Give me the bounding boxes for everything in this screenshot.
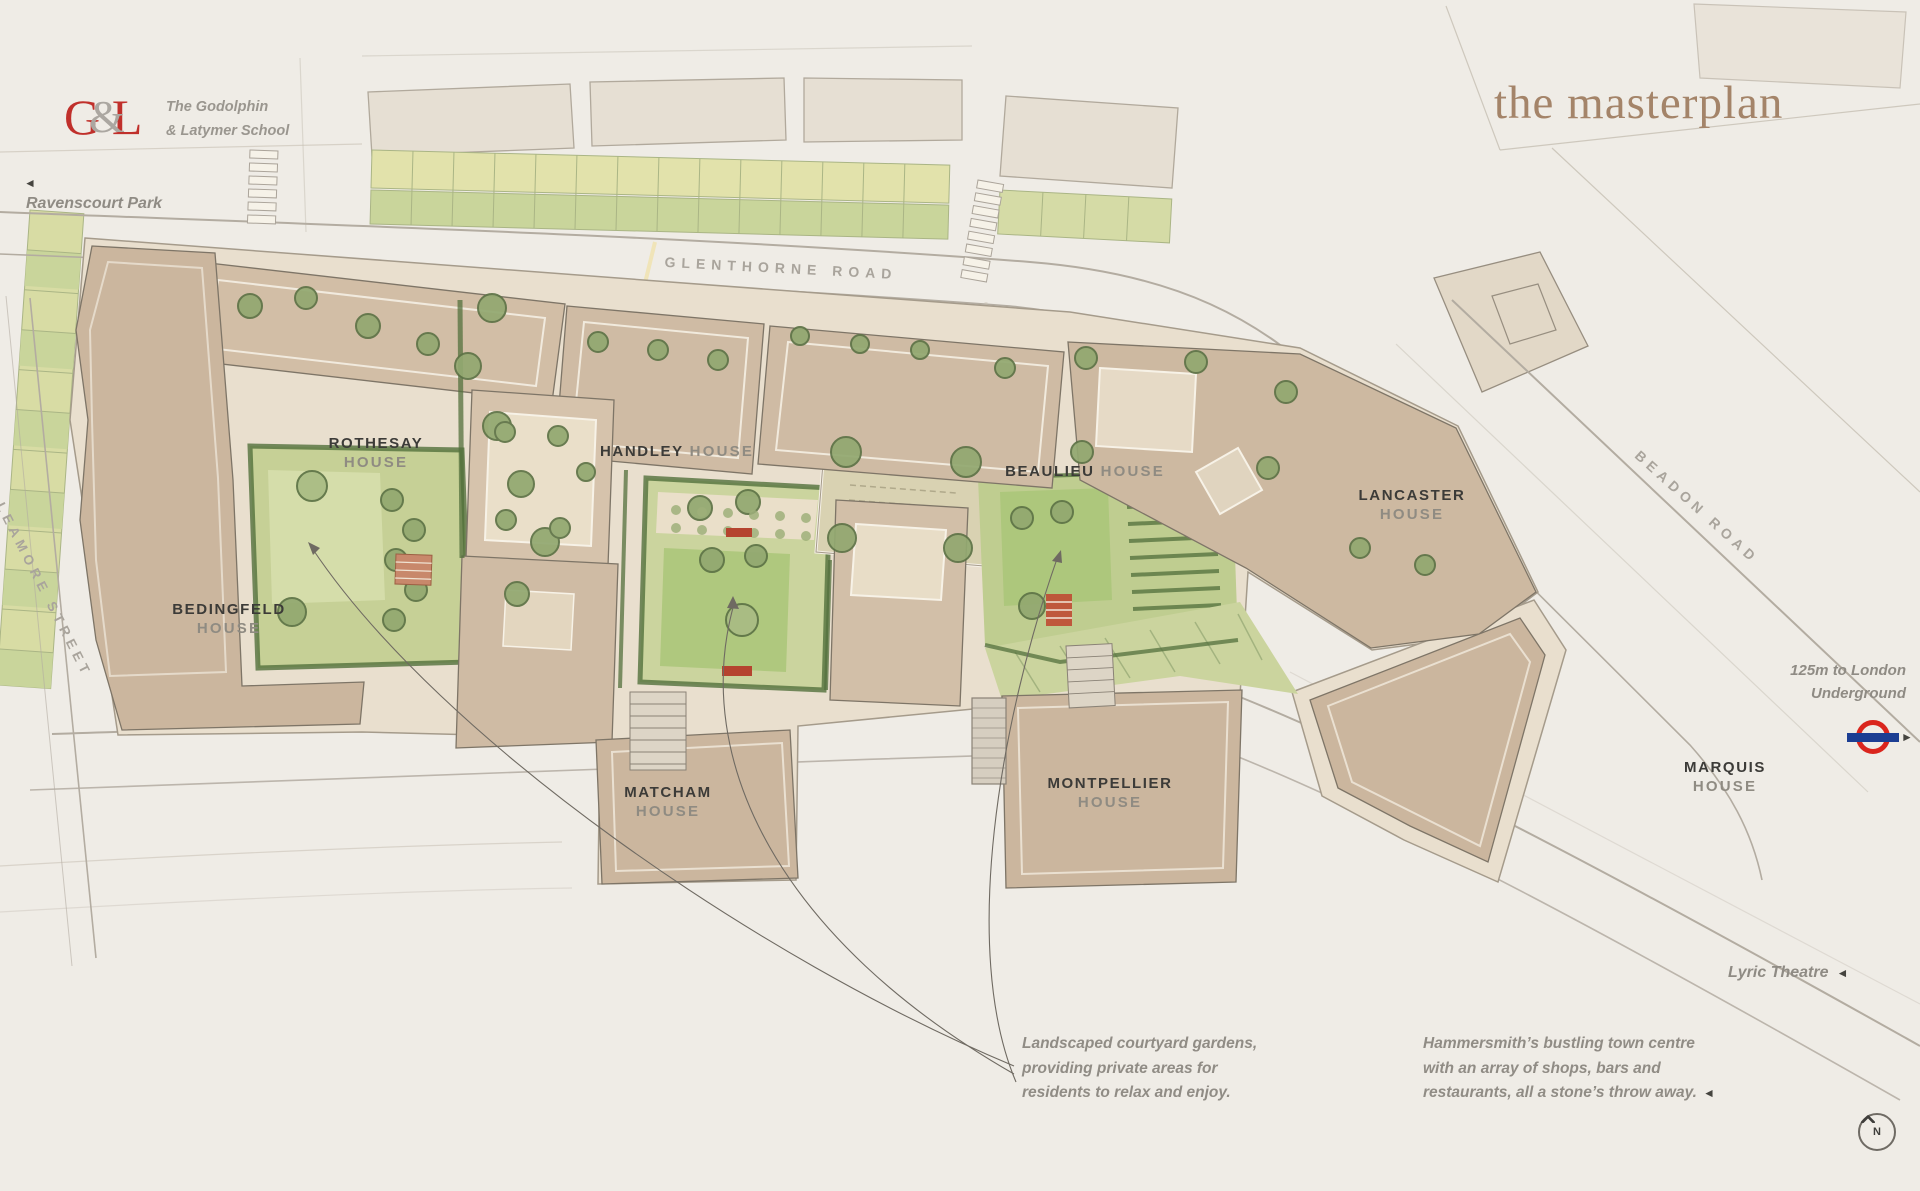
- underground-arrow-icon: ►: [1901, 730, 1913, 744]
- logo-ampersand: &: [89, 91, 125, 142]
- zebra-crossing-east: [961, 180, 1004, 282]
- underground-roundel-bar: [1847, 733, 1899, 742]
- ravenscourt-park-label: Ravenscourt Park: [26, 195, 162, 213]
- north-chevron-icon: [1860, 1115, 1876, 1123]
- lyric-arrow-icon: ◄: [1836, 966, 1848, 980]
- house-label-matcham: MATCHAM HOUSE: [624, 783, 712, 821]
- town-centre-arrow-icon: ◄: [1703, 1086, 1715, 1100]
- house-label-handley: HANDLEYHOUSE: [600, 442, 754, 461]
- house-label-lancaster: LANCASTER HOUSE: [1359, 486, 1466, 524]
- house-label-bedingfeld: BEDINGFELD HOUSE: [172, 600, 286, 638]
- underground-distance-note: 125m to London Underground: [1790, 659, 1906, 705]
- annotation-courtyards: Landscaped courtyard gardens, providing …: [1022, 1032, 1257, 1106]
- ravenscourt-arrow-icon: ◄: [24, 176, 36, 190]
- north-letter: N: [1873, 1127, 1881, 1137]
- house-label-montpellier: MONTPELLIER HOUSE: [1047, 774, 1172, 812]
- masterplan-page: G&L The Godolphin & Latymer School the m…: [0, 0, 1920, 1191]
- footbridge: [972, 698, 1006, 784]
- underground-note-line1: 125m to London: [1790, 659, 1906, 682]
- lyric-theatre-label: Lyric Theatre◄: [1728, 964, 1848, 982]
- building-matcham: [456, 556, 618, 748]
- annotation-town-centre: Hammersmith’s bustling town centre with …: [1423, 1032, 1715, 1106]
- house-label-beaulieu: BEAULIEUHOUSE: [1005, 462, 1165, 481]
- masterplan-map: [0, 0, 1920, 1191]
- west-gardens: [0, 210, 84, 689]
- school-logo: G&L: [64, 92, 142, 142]
- school-name-line1: The Godolphin: [166, 95, 289, 119]
- underground-note-line2: Underground: [1790, 682, 1906, 705]
- stairs-east: [1066, 644, 1115, 708]
- north-compass: N: [1858, 1113, 1896, 1151]
- house-label-marquis: MARQUIS HOUSE: [1684, 758, 1766, 796]
- school-name-line2: & Latymer School: [166, 119, 289, 143]
- zebra-crossing-west: [247, 150, 278, 224]
- house-label-rothesay: ROTHESAY HOUSE: [329, 434, 424, 472]
- page-title: the masterplan: [1494, 76, 1783, 130]
- stairs-west: [630, 692, 686, 770]
- school-name: The Godolphin & Latymer School: [166, 95, 289, 143]
